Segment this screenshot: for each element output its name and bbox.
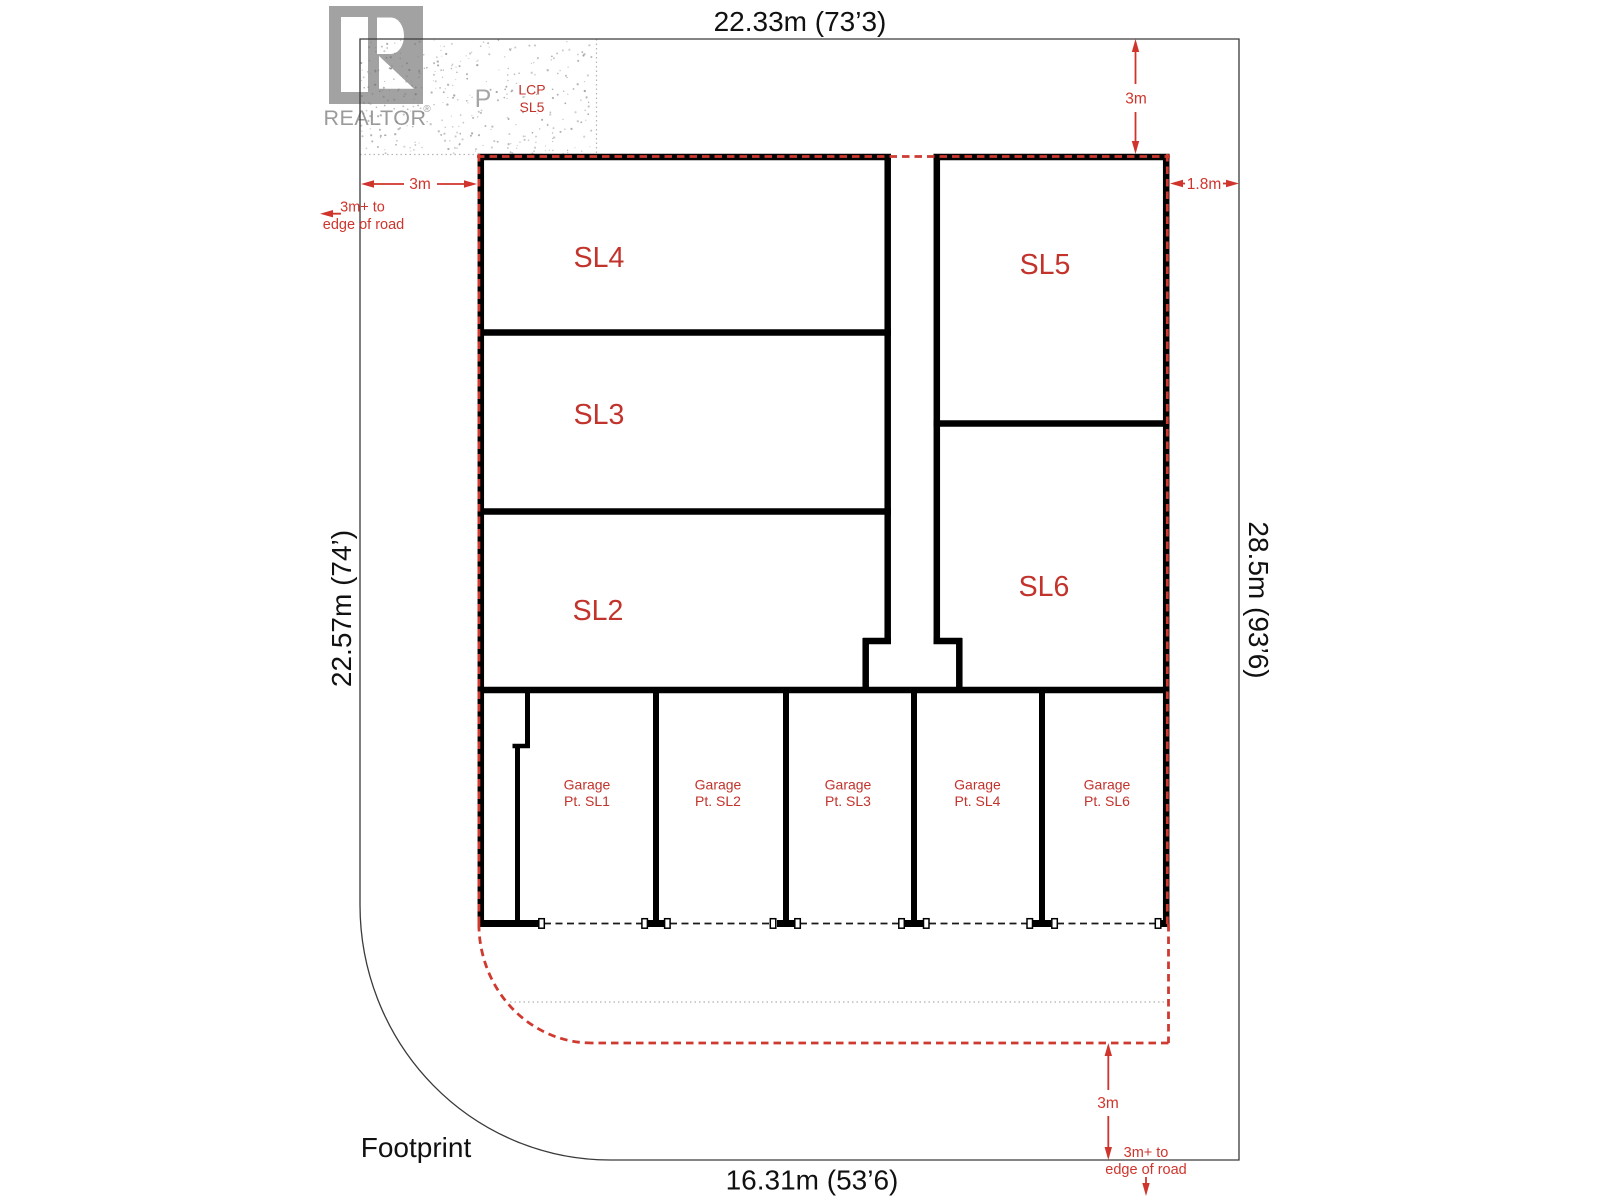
- svg-text:Footprint: Footprint: [361, 1132, 472, 1163]
- svg-text:3m+ to: 3m+ to: [1124, 1145, 1169, 1161]
- svg-text:®: ®: [423, 104, 431, 115]
- svg-text:3m: 3m: [1125, 91, 1147, 108]
- svg-text:SL5: SL5: [1020, 249, 1071, 281]
- svg-text:Garage: Garage: [954, 777, 1001, 793]
- svg-text:edge of road: edge of road: [1105, 1162, 1186, 1178]
- svg-text:edge of road: edge of road: [323, 217, 404, 233]
- svg-text:Pt. SL6: Pt. SL6: [1084, 793, 1130, 809]
- svg-text:3m+ to: 3m+ to: [340, 200, 385, 216]
- svg-text:Garage: Garage: [1084, 777, 1131, 793]
- svg-text:3m: 3m: [409, 176, 431, 193]
- svg-text:22.33m (73’3): 22.33m (73’3): [714, 6, 887, 37]
- svg-text:Pt. SL1: Pt. SL1: [564, 793, 610, 809]
- svg-text:Pt. SL4: Pt. SL4: [955, 793, 1001, 809]
- svg-text:1.8m: 1.8m: [1187, 176, 1221, 193]
- svg-text:REALTOR: REALTOR: [323, 106, 426, 130]
- svg-text:P: P: [475, 85, 492, 113]
- svg-text:SL3: SL3: [574, 399, 625, 431]
- svg-text:Garage: Garage: [564, 777, 611, 793]
- svg-text:SL5: SL5: [520, 99, 545, 115]
- svg-text:SL4: SL4: [574, 242, 625, 274]
- svg-text:LCP: LCP: [518, 82, 545, 98]
- svg-text:Garage: Garage: [825, 777, 872, 793]
- svg-text:SL2: SL2: [573, 595, 624, 627]
- svg-text:16.31m (53’6): 16.31m (53’6): [726, 1165, 899, 1196]
- svg-text:Pt. SL3: Pt. SL3: [825, 793, 871, 809]
- svg-text:3m: 3m: [1097, 1095, 1119, 1112]
- svg-text:Garage: Garage: [695, 777, 742, 793]
- svg-text:22.57m (74’): 22.57m (74’): [326, 530, 357, 687]
- svg-text:Pt. SL2: Pt. SL2: [695, 793, 741, 809]
- svg-text:SL6: SL6: [1019, 571, 1070, 603]
- svg-text:28.5m (93’6): 28.5m (93’6): [1243, 521, 1274, 678]
